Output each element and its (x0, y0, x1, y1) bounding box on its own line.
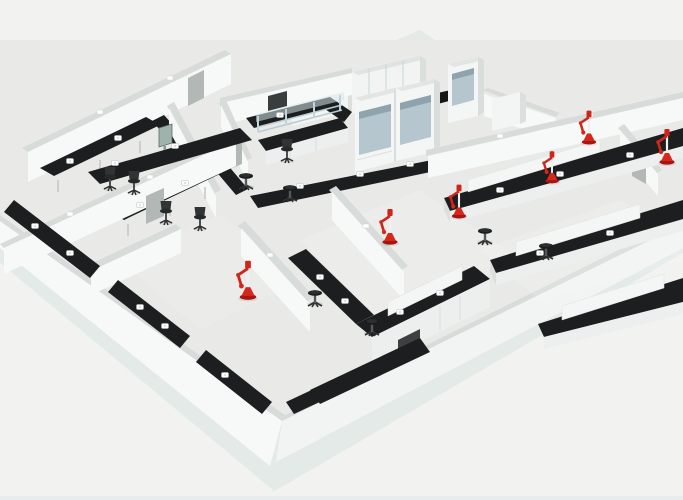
wall-cap-light (147, 175, 153, 179)
wall-cap-light (497, 134, 503, 138)
bench-outlet (437, 291, 444, 296)
bench-outlet (162, 324, 169, 329)
shelf-post (285, 109, 287, 125)
wall-cap-light (67, 212, 73, 216)
lab-render-stage (0, 0, 683, 500)
bench-outlet (357, 172, 364, 177)
fume-hood-side (434, 79, 440, 152)
bench-outlet (277, 113, 284, 118)
bench-outlet (32, 224, 39, 229)
bench-outlet (182, 181, 189, 186)
shelf-post (313, 102, 315, 118)
bench-outlet (67, 251, 74, 256)
lab-render (0, 0, 683, 500)
wall-cap-light (167, 76, 173, 80)
bench-outlet (172, 144, 179, 149)
bench-outlet (397, 310, 404, 315)
cabinet-side (520, 92, 526, 124)
bench-outlet (407, 162, 414, 167)
shelf-post (339, 95, 341, 111)
bench-outlet (627, 153, 634, 158)
bench-outlet (342, 299, 349, 304)
bench-outlet (497, 188, 504, 193)
bench-outlet (557, 172, 564, 177)
bench-outlet (67, 159, 74, 164)
bench-outlet (137, 203, 144, 208)
fume-hood-side (478, 57, 484, 116)
bench-outlet (112, 161, 119, 166)
bench-outlet (222, 373, 229, 378)
wall-cap-light (267, 253, 273, 257)
bench-outlet (537, 251, 544, 256)
bottom-edge-strip (0, 496, 683, 500)
bench-outlet (115, 136, 122, 141)
shelf-post (257, 116, 259, 132)
bench-outlet (137, 305, 144, 310)
bench-outlet (317, 275, 324, 280)
wall-cap-light (363, 224, 369, 228)
bench-outlet (607, 231, 614, 236)
bench-outlet (297, 184, 304, 189)
wall-cap-light (97, 110, 103, 114)
